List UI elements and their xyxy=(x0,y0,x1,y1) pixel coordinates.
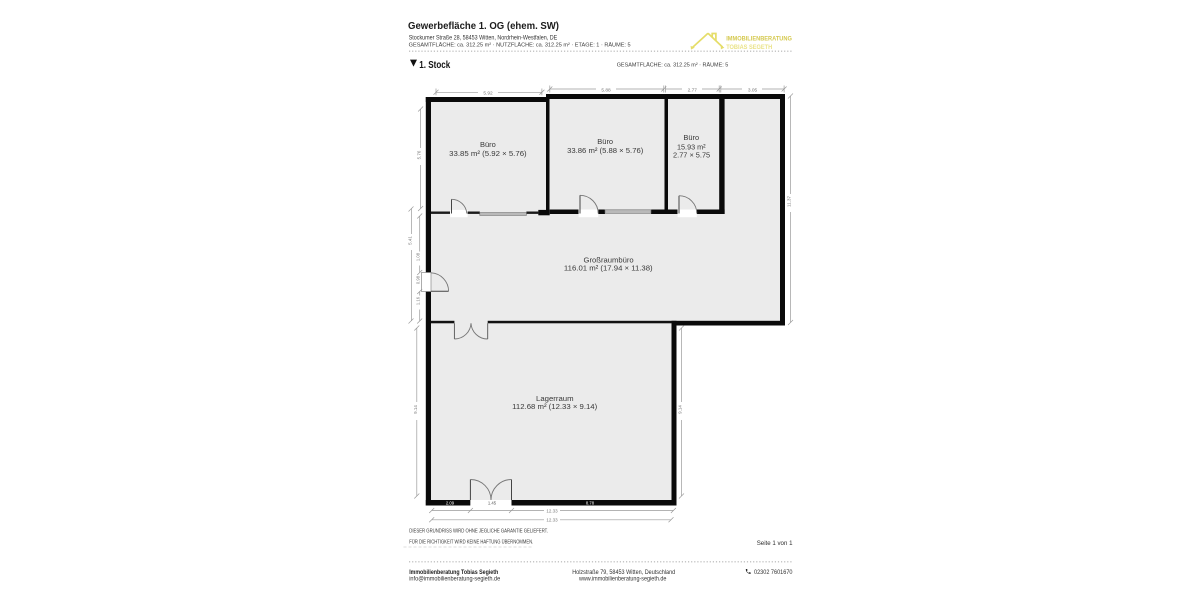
svg-text:5.41: 5.41 xyxy=(408,236,413,245)
svg-text:Büro: Büro xyxy=(597,137,613,146)
svg-text:02302 7601670: 02302 7601670 xyxy=(754,569,793,576)
svg-text:8.78: 8.78 xyxy=(586,501,595,506)
svg-text:9.14: 9.14 xyxy=(678,405,683,414)
svg-text:5.92: 5.92 xyxy=(483,90,493,96)
svg-text:112.68 m² (12.33 × 9.14): 112.68 m² (12.33 × 9.14) xyxy=(512,402,597,411)
svg-text:2.09: 2.09 xyxy=(446,501,455,506)
svg-text:11.37: 11.37 xyxy=(787,196,792,207)
svg-text:www.immobilienberatung-segieth: www.immobilienberatung-segieth.de xyxy=(578,576,667,583)
svg-text:Seite 1 von 1: Seite 1 von 1 xyxy=(757,540,793,547)
svg-text:FÜR DIE RICHTIGKEIT WIRD KEINE: FÜR DIE RICHTIGKEIT WIRD KEINE HAFTUNG Ü… xyxy=(409,538,533,545)
svg-text:0.98: 0.98 xyxy=(416,275,421,284)
svg-text:1.45: 1.45 xyxy=(488,501,497,506)
svg-text:Gewerbefläche 1. OG (ehem. SW): Gewerbefläche 1. OG (ehem. SW) xyxy=(408,21,559,32)
svg-text:9.14: 9.14 xyxy=(413,405,418,414)
svg-text:TOBIAS SEGETH: TOBIAS SEGETH xyxy=(726,44,772,51)
svg-text:116.01 m² (17.94 × 11.38): 116.01 m² (17.94 × 11.38) xyxy=(564,264,653,273)
svg-text:2.77: 2.77 xyxy=(688,87,698,93)
svg-text:3.05: 3.05 xyxy=(748,87,758,93)
svg-text:33.86 m² (5.88 × 5.76): 33.86 m² (5.88 × 5.76) xyxy=(567,146,644,155)
svg-text:DIESER GRUNDRISS WIRD OHNE JEG: DIESER GRUNDRISS WIRD OHNE JEGLICHE GARA… xyxy=(409,529,548,535)
svg-text:Stockumer Straße 28, 58453 Wit: Stockumer Straße 28, 58453 Witten, Nordr… xyxy=(409,35,558,42)
svg-text:5.88: 5.88 xyxy=(601,87,611,93)
svg-text:2.77 × 5.75: 2.77 × 5.75 xyxy=(673,151,710,160)
svg-text:12.33: 12.33 xyxy=(546,518,558,523)
svg-text:1.08: 1.08 xyxy=(416,252,421,261)
svg-text:1. Stock: 1. Stock xyxy=(419,60,450,71)
svg-text:1.16: 1.16 xyxy=(416,296,421,305)
svg-text:GESAMTFLÄCHE: ca. 312.25 m² ·: GESAMTFLÄCHE: ca. 312.25 m² · RÄUME: 5 xyxy=(617,62,729,69)
svg-text:33.85 m² (5.92 × 5.76): 33.85 m² (5.92 × 5.76) xyxy=(449,149,527,158)
svg-text:GESAMTFLÄCHE: ca. 312.25 m² ·: GESAMTFLÄCHE: ca. 312.25 m² · NUTZFLÄCHE… xyxy=(409,42,631,49)
svg-text:12.33: 12.33 xyxy=(546,508,558,513)
svg-text:5.76: 5.76 xyxy=(417,150,422,159)
svg-text:Büro: Büro xyxy=(683,133,699,142)
svg-text:info@immobilienberatung-segiet: info@immobilienberatung-segieth.de xyxy=(409,576,500,583)
svg-text:Büro: Büro xyxy=(480,140,496,149)
svg-text:IMMOBILIENBERATUNG: IMMOBILIENBERATUNG xyxy=(726,36,792,43)
